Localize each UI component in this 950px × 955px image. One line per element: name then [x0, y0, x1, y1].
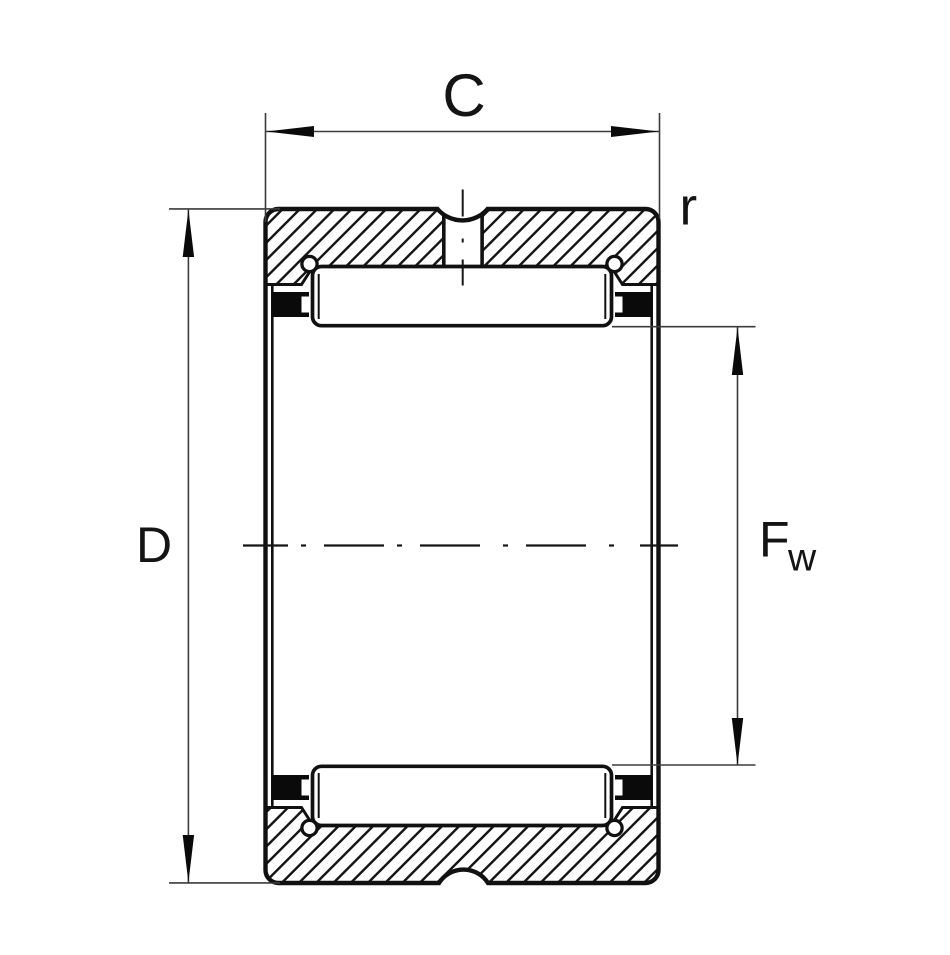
svg-text:r: r — [680, 178, 698, 237]
svg-text:D: D — [136, 517, 172, 573]
svg-text:F: F — [759, 512, 790, 568]
svg-text:w: w — [787, 537, 817, 580]
svg-text:C: C — [442, 62, 485, 129]
